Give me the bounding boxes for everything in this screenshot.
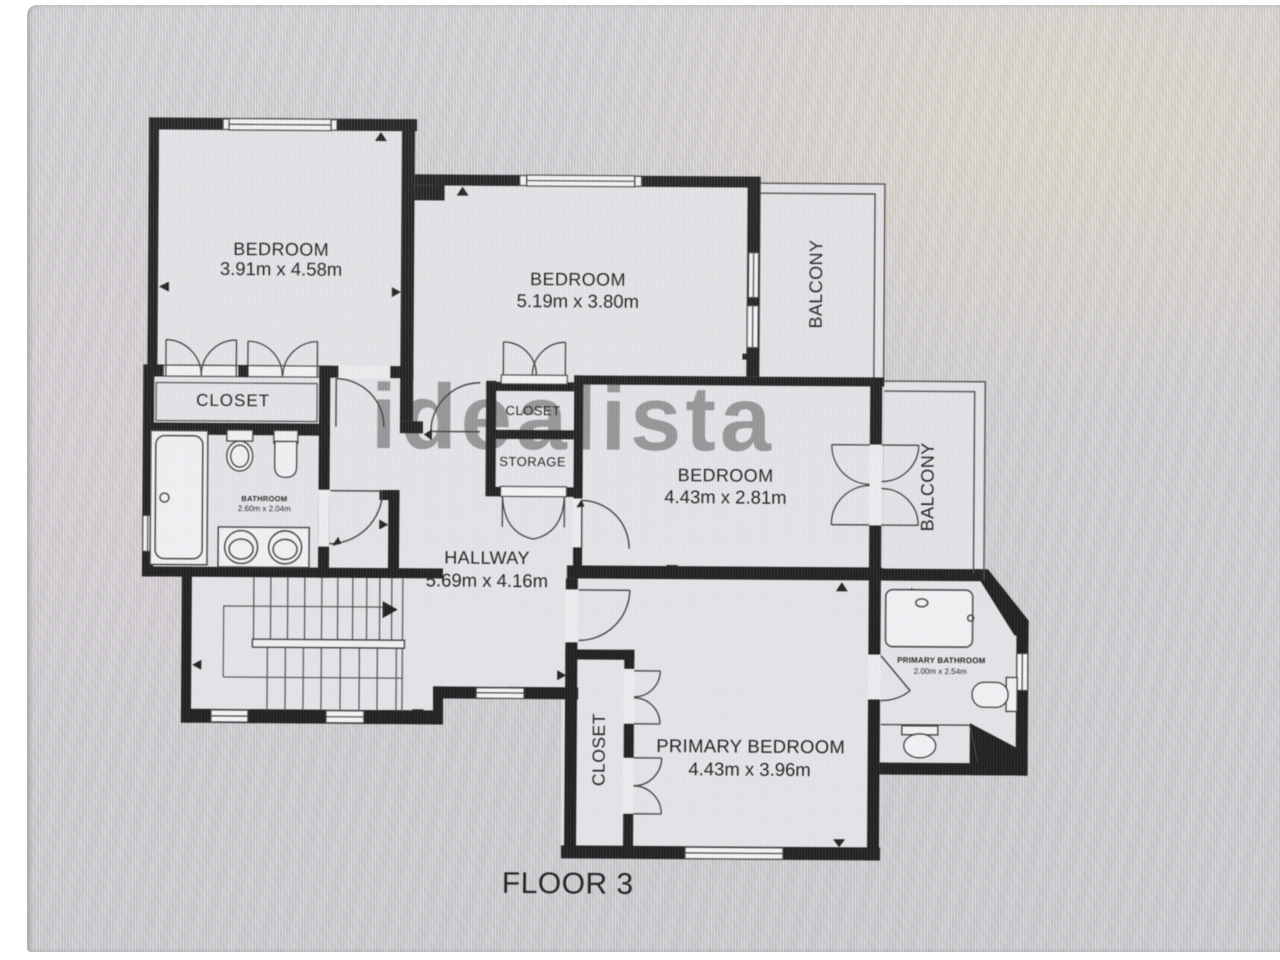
- svg-text:5.69m x 4.16m: 5.69m x 4.16m: [426, 569, 549, 591]
- svg-text:CLOSET: CLOSET: [196, 391, 270, 411]
- svg-text:STORAGE: STORAGE: [499, 454, 566, 469]
- svg-text:HALLWAY: HALLWAY: [444, 547, 530, 568]
- svg-text:BALCONY: BALCONY: [917, 442, 938, 531]
- svg-text:PRIMARY BATHROOM: PRIMARY BATHROOM: [897, 656, 986, 666]
- svg-text:2.60m x 2.04m: 2.60m x 2.04m: [238, 504, 291, 513]
- svg-text:BEDROOM: BEDROOM: [233, 239, 329, 260]
- svg-text:CLOSET: CLOSET: [506, 403, 561, 418]
- svg-text:5.19m x 3.80m: 5.19m x 3.80m: [517, 290, 640, 312]
- svg-text:3.91m x 4.58m: 3.91m x 4.58m: [220, 258, 343, 280]
- svg-text:4.43m x 3.96m: 4.43m x 3.96m: [688, 758, 811, 780]
- svg-text:2.00m x 2.54m: 2.00m x 2.54m: [914, 667, 967, 676]
- svg-text:PRIMARY BEDROOM: PRIMARY BEDROOM: [656, 735, 845, 757]
- svg-text:FLOOR 3: FLOOR 3: [502, 867, 634, 901]
- svg-text:BALCONY: BALCONY: [806, 240, 827, 329]
- svg-text:BEDROOM: BEDROOM: [678, 465, 774, 486]
- svg-text:BEDROOM: BEDROOM: [530, 269, 626, 290]
- svg-text:BATHROOM: BATHROOM: [241, 494, 287, 503]
- svg-text:4.43m x 2.81m: 4.43m x 2.81m: [664, 486, 787, 508]
- svg-text:CLOSET: CLOSET: [588, 713, 609, 786]
